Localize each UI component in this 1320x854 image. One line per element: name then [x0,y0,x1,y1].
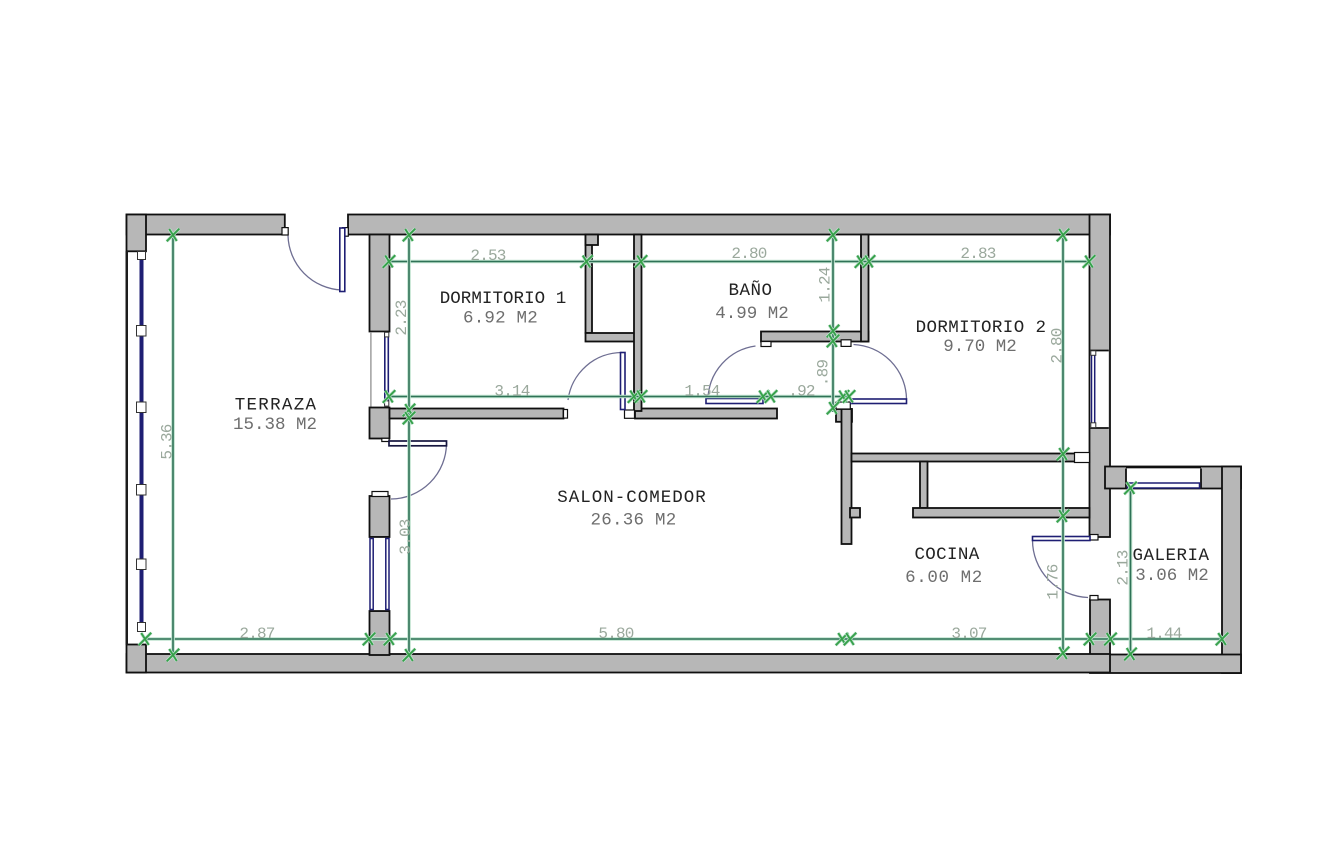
svg-text:5.36: 5.36 [159,424,177,459]
svg-text:DORMITORIO 1: DORMITORIO 1 [440,289,567,309]
svg-text:BAÑO: BAÑO [728,280,772,301]
svg-text:GALERIA: GALERIA [1132,546,1209,566]
svg-text:2.87: 2.87 [239,625,274,643]
svg-text:2.80: 2.80 [1049,328,1067,363]
svg-text:4.99 M2: 4.99 M2 [715,304,789,324]
svg-text:3.14: 3.14 [494,383,529,401]
svg-text:SALON-COMEDOR: SALON-COMEDOR [557,488,707,508]
svg-text:6.92 M2: 6.92 M2 [463,309,538,329]
svg-text:1.76: 1.76 [1045,564,1063,599]
svg-text:2.23: 2.23 [393,300,411,335]
svg-text:2.83: 2.83 [960,245,995,263]
svg-text:5.80: 5.80 [598,625,633,643]
svg-text:6.00 M2: 6.00 M2 [905,568,983,588]
svg-text:1.44: 1.44 [1146,625,1181,643]
svg-text:2.80: 2.80 [731,245,766,263]
svg-text:1.24: 1.24 [817,267,835,302]
svg-text:COCINA: COCINA [914,545,979,565]
svg-text:DORMITORIO 2: DORMITORIO 2 [916,318,1047,338]
svg-text:3.06 M2: 3.06 M2 [1135,566,1209,586]
svg-text:.92: .92 [788,383,815,401]
svg-text:.89: .89 [815,360,833,387]
svg-text:3.03: 3.03 [397,519,415,554]
svg-text:TERRAZA: TERRAZA [235,396,318,416]
svg-text:9.70 M2: 9.70 M2 [943,337,1017,357]
svg-text:2.13: 2.13 [1115,550,1133,585]
svg-text:2.53: 2.53 [470,247,505,265]
svg-text:26.36 M2: 26.36 M2 [590,511,676,531]
svg-text:1.54: 1.54 [684,383,719,401]
svg-text:15.38 M2: 15.38 M2 [233,415,317,435]
svg-text:3.07: 3.07 [951,625,986,643]
